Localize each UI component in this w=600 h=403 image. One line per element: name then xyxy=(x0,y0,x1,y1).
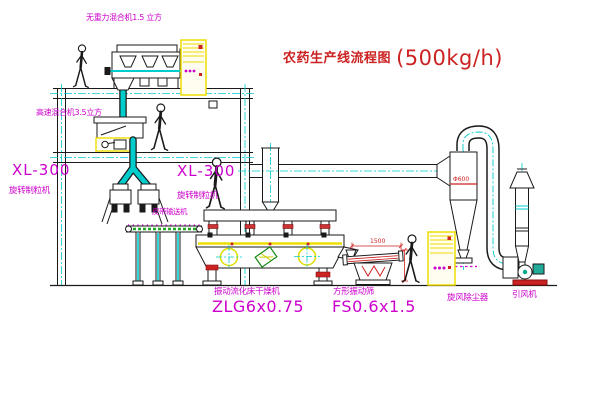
dryer-nozzles xyxy=(208,221,330,235)
granulator-left xyxy=(102,184,131,224)
vibrating-screen xyxy=(343,250,404,285)
label-dryer-model: ZLG6x0.75 xyxy=(212,299,304,315)
granulator-right xyxy=(138,184,168,224)
title-capacity: (500kg/h) xyxy=(396,46,503,70)
exhaust-duct xyxy=(250,148,437,210)
fluid-bed-dryer xyxy=(196,210,358,285)
person-icon xyxy=(151,104,167,150)
label-granulator-model-left: XL-300 xyxy=(12,163,70,178)
dimension-cyclone-diameter: Φ600 xyxy=(453,177,469,183)
label-granulator-name-mid: 旋转制粒机 xyxy=(177,192,218,201)
person-icon xyxy=(73,45,88,88)
label-granulator-model-mid: XL-300 xyxy=(177,164,235,179)
label-screen-name: 方形振动筛 xyxy=(333,288,374,297)
label-belt-conveyor: 皮带输送机 xyxy=(152,208,187,216)
conveyor-legs xyxy=(133,232,183,285)
dimension-screen-length: 1500 xyxy=(370,239,385,245)
high-speed-mixer xyxy=(94,117,146,151)
label-dryer-name: 振动流化床干燥机 xyxy=(214,288,280,297)
exhaust-stack xyxy=(510,169,534,268)
label-granulator-name-left: 旋转制粒机 xyxy=(9,187,50,196)
control-cabinet-right xyxy=(428,232,455,285)
title-text: 农药生产线流程图 xyxy=(283,51,391,66)
label-fan: 引风机 xyxy=(512,291,537,300)
control-cabinet-top xyxy=(181,40,206,95)
label-cyclone: 旋风除尘器 xyxy=(447,294,488,303)
label-screen-model: FS0.6x1.5 xyxy=(332,299,416,315)
gravity-free-mixer xyxy=(105,45,190,118)
label-high-speed-mixer: 高速混合机3.5立方 xyxy=(36,109,102,117)
diagram-title: 农药生产线流程图 (500kg/h) xyxy=(283,46,503,70)
floor-box xyxy=(209,101,217,108)
label-gravity-mixer: 无重力混合机1.5 立方 xyxy=(86,14,162,22)
belt-conveyor xyxy=(126,225,203,285)
process-flow-diagram: 农药生产线流程图 (500kg/h) 无重力混合机1.5 立方 高速混合机3.5… xyxy=(0,0,600,403)
person-icon xyxy=(403,235,420,282)
